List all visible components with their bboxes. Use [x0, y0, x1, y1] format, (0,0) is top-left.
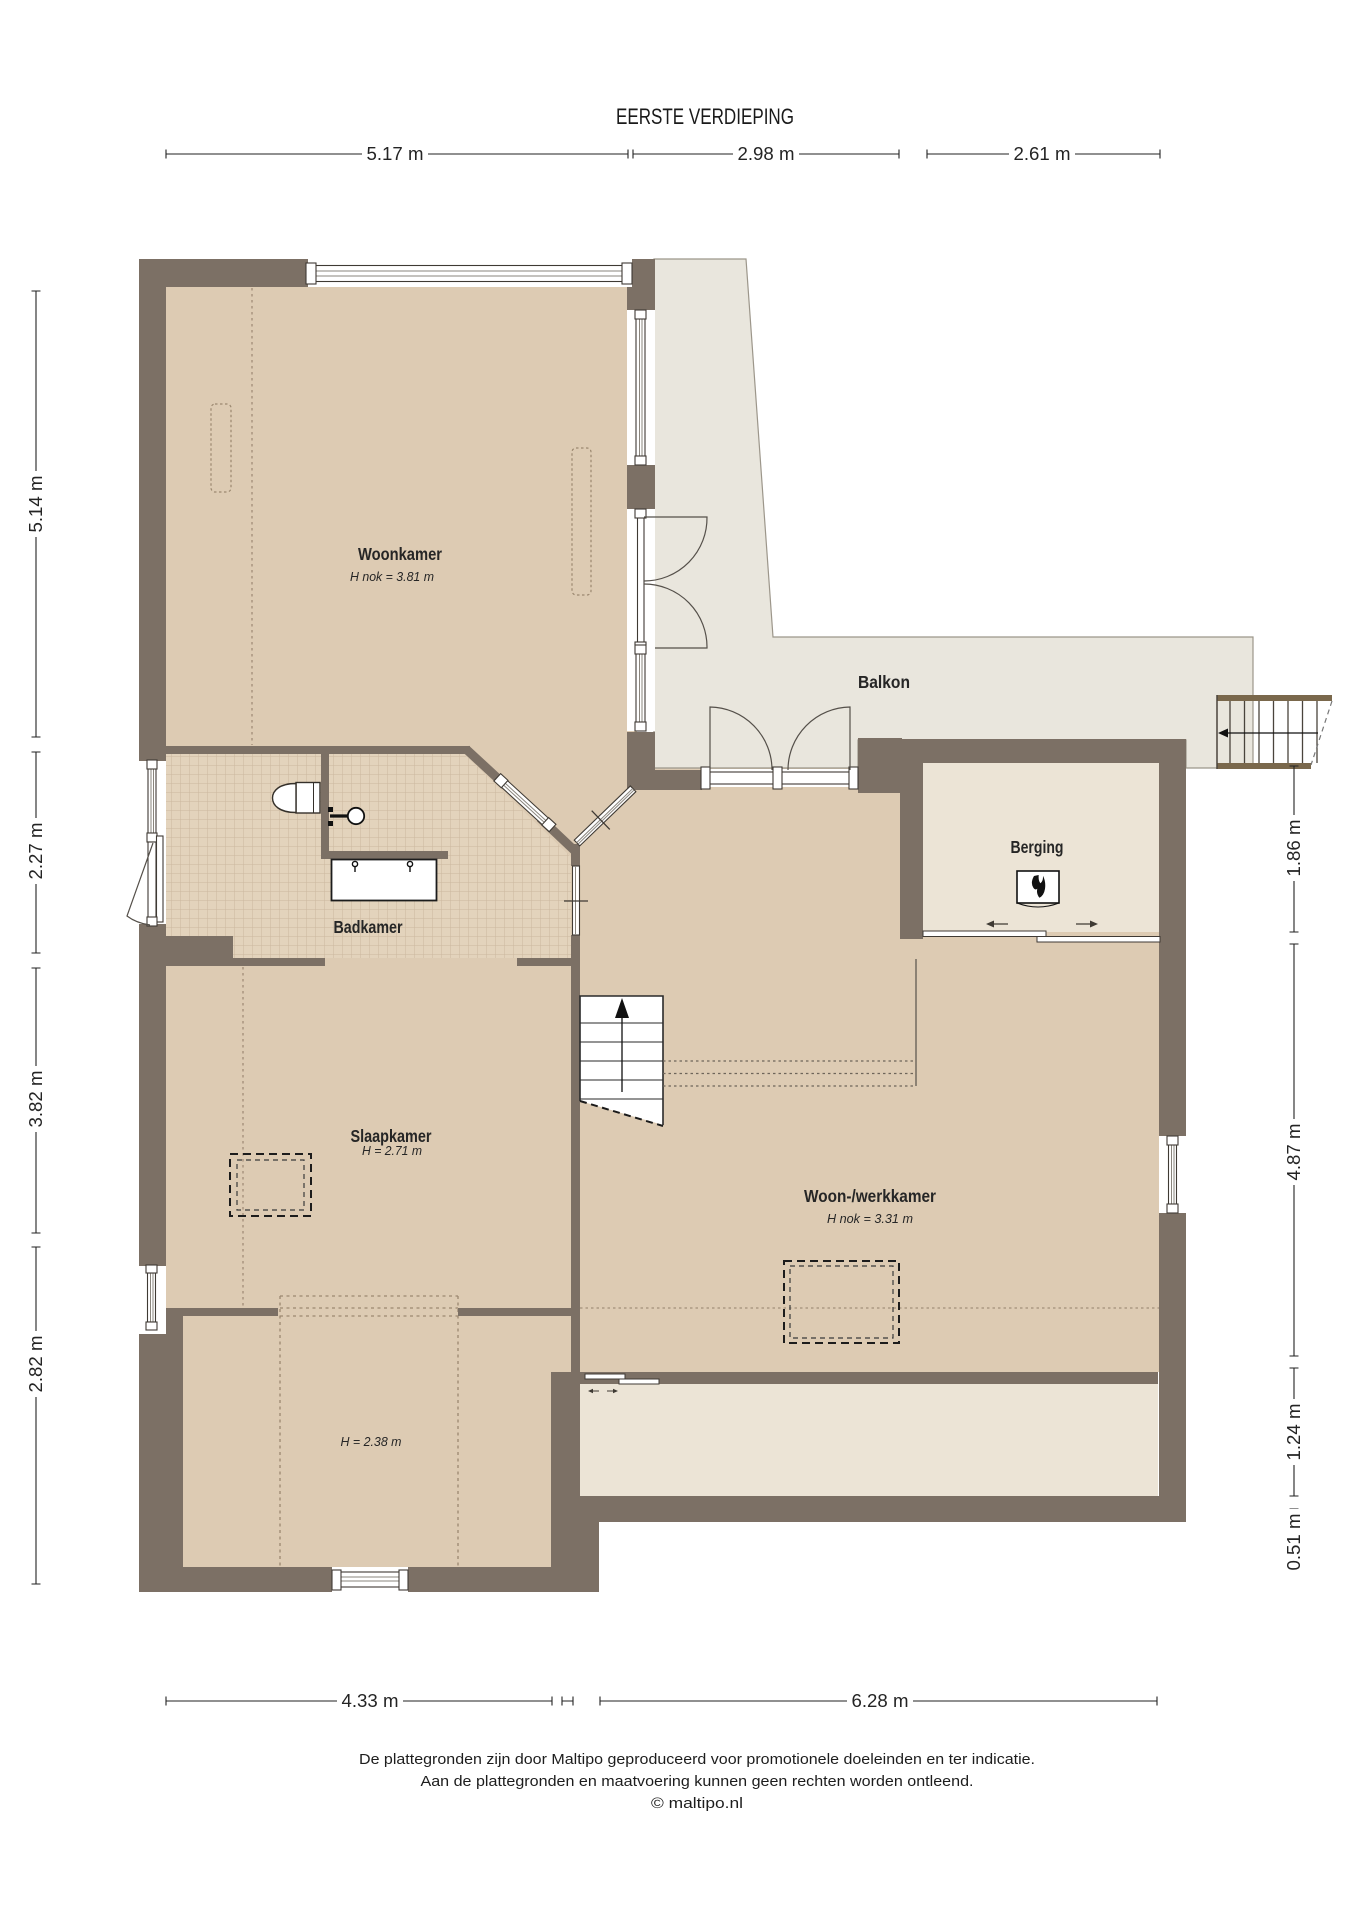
svg-text:© maltipo.nl: © maltipo.nl: [651, 1795, 743, 1812]
svg-text:2.98 m: 2.98 m: [738, 144, 795, 164]
svg-text:Woon-/werkkamer: Woon-/werkkamer: [804, 1186, 936, 1206]
svg-text:Woonkamer: Woonkamer: [358, 544, 442, 564]
svg-text:4.87 m: 4.87 m: [1284, 1124, 1304, 1181]
svg-text:EERSTE VERDIEPING: EERSTE VERDIEPING: [616, 104, 794, 129]
svg-text:6.28 m: 6.28 m: [852, 1691, 909, 1711]
svg-text:H = 2.71 m: H = 2.71 m: [362, 1143, 422, 1158]
svg-text:Balkon: Balkon: [858, 672, 910, 692]
svg-text:3.82 m: 3.82 m: [26, 1071, 46, 1128]
svg-text:De plattegronden zijn door Mal: De plattegronden zijn door Maltipo gepro…: [359, 1751, 1035, 1768]
svg-text:2.27 m: 2.27 m: [26, 823, 46, 880]
svg-text:2.82 m: 2.82 m: [26, 1336, 46, 1393]
svg-text:1.86 m: 1.86 m: [1284, 820, 1304, 877]
svg-text:5.17 m: 5.17 m: [367, 144, 424, 164]
svg-text:5.14 m: 5.14 m: [26, 476, 46, 533]
svg-text:H nok = 3.81 m: H nok = 3.81 m: [350, 569, 434, 584]
svg-text:H = 2.38 m: H = 2.38 m: [341, 1434, 402, 1449]
svg-text:Berging: Berging: [1011, 837, 1064, 857]
svg-text:H nok = 3.31 m: H nok = 3.31 m: [827, 1211, 913, 1226]
svg-text:Badkamer: Badkamer: [334, 917, 403, 937]
svg-text:2.61 m: 2.61 m: [1014, 144, 1071, 164]
svg-text:4.33 m: 4.33 m: [342, 1691, 399, 1711]
svg-text:Aan de plattegronden en maatvo: Aan de plattegronden en maatvoering kunn…: [421, 1773, 974, 1790]
svg-text:1.24 m: 1.24 m: [1284, 1404, 1304, 1461]
svg-text:0.51 m: 0.51 m: [1284, 1514, 1304, 1571]
